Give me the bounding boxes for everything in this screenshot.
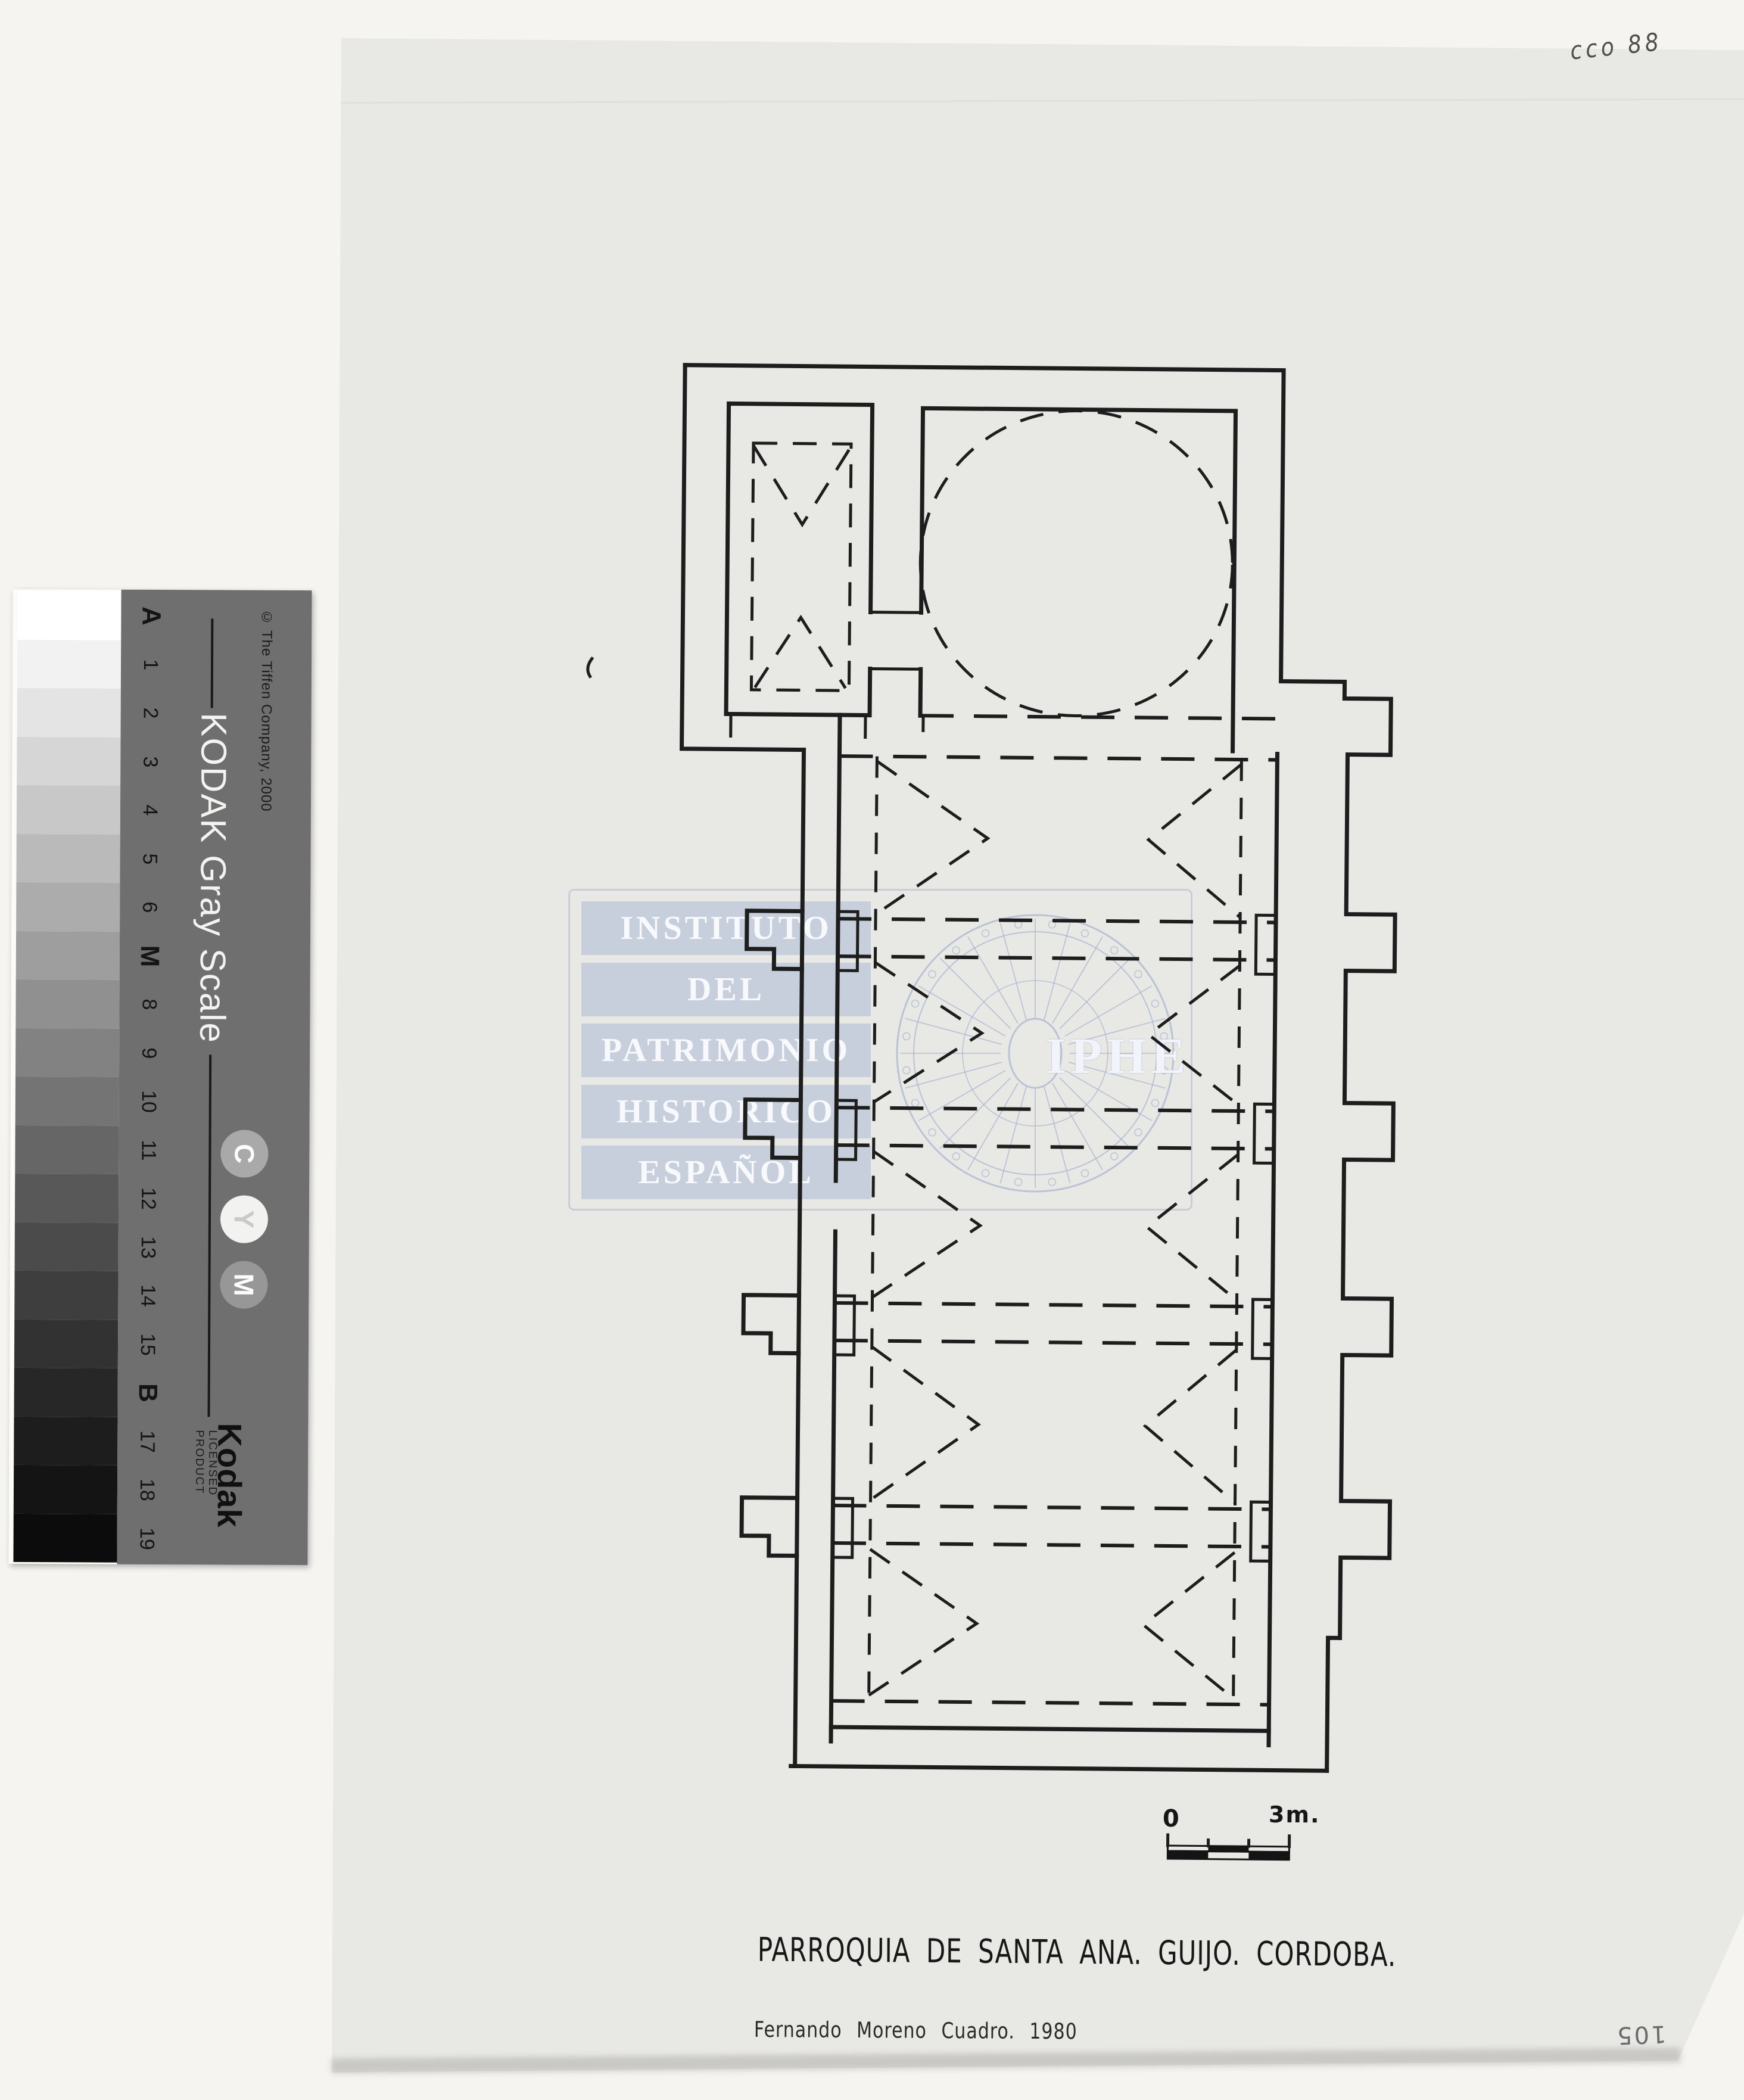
section-ticks [731,714,923,738]
nave-bottom-interior-wall [831,1727,1269,1731]
gray-patch [16,882,120,931]
dome-room-walls [920,408,1236,751]
gray-patch-column [13,591,121,1563]
cyan-dot: C [220,1130,268,1177]
scale-bar-3m-label: 3m. [1269,1802,1321,1828]
gray-patch [14,1368,118,1417]
gray-patch [15,1174,119,1222]
gray-step-labels: A123456M89101112131415B171819 [122,590,312,590]
transverse-arches [831,715,1278,1704]
tower-vault-top [753,446,851,525]
gray-scale-step-label: 11 [132,1133,165,1166]
gray-patch [16,931,120,979]
gray-patch [17,785,120,834]
gray-patch [14,1416,117,1465]
gray-scale-step-label: 1 [134,648,167,681]
passage-walls [870,612,921,670]
gray-patch [17,591,121,640]
gray-scale-step-label: 17 [130,1424,164,1458]
left-pilaster [746,911,802,969]
gray-scale-step-label: 12 [132,1182,165,1215]
nave-left-interior-wall [831,715,840,1741]
kodak-gray-scale-strip: A123456M89101112131415B171819 KODAK Gray… [8,589,312,1565]
nave-bottom-outer-wall [791,1766,1327,1771]
tower-vault-bottom [755,617,846,688]
gray-patch [15,1222,119,1271]
plan-author-line: Fernando Moreno Cuadro. 1980 [754,2017,1077,2045]
gray-scale-step-label: 4 [133,794,167,827]
gray-patch [15,1125,119,1174]
gray-scale-step-label: 8 [132,988,166,1021]
gray-scale-card: A123456M89101112131415B171819 KODAK Gray… [117,590,312,1565]
gray-scale-step-label: 10 [132,1085,166,1118]
formeret-left [869,757,877,1701]
gray-patch [17,639,121,688]
gray-scale-step-label: 19 [130,1522,163,1555]
gray-patch [13,1513,117,1562]
vault-chevrons [869,761,1242,1698]
nave-left-exterior-wall [795,750,804,1766]
dome-circle [919,409,1234,717]
gray-patch [14,1319,118,1368]
plan-title: PARROQUIA DE SANTA ANA. GUIJO. CORDOBA. [758,1930,1397,1974]
yellow-dot: Y [220,1195,268,1243]
head-block-outline [682,365,1394,755]
archival-photo-canvas: INSTITUTO DEL PATRIMONIO HISTORICO ESPAÑ… [0,0,1744,2100]
gray-scale-step-label: 3 [133,745,167,778]
gray-scale-step-label: 14 [131,1279,164,1312]
gray-patch [14,1465,117,1514]
nave-right-exterior-wall [1327,754,1397,1771]
magenta-dot: M [220,1261,267,1308]
card-rule [208,1054,212,1417]
gray-scale-step-label: 2 [134,696,167,730]
gray-patch [16,833,120,882]
gray-patch [14,1271,118,1320]
nave-right-interior-wall [1269,754,1278,1746]
gray-patch [15,1028,119,1077]
left-pilaster [742,1498,798,1556]
interior-pier-tabs [833,911,1276,1561]
gray-scale-step-label: A [134,599,167,633]
tower-vault-outline [751,443,851,690]
pen-mark [588,658,592,676]
head-block-left-wall [682,365,808,750]
gray-patch [15,1077,119,1125]
left-pilaster [745,1100,801,1158]
kodak-gray-scale-title: KODAK Gray Scale [192,713,234,1044]
scale-bar-zero-label: 0 [1163,1805,1179,1833]
gray-scale-step-label: 13 [132,1230,165,1264]
gray-scale-step-label: 6 [133,891,166,924]
gray-scale-step-label: 18 [130,1473,164,1507]
gray-scale-step-label: B [131,1376,164,1410]
gray-scale-step-label: 9 [132,1036,166,1069]
formeret-right [1234,760,1242,1704]
gray-patch [17,736,120,785]
gray-scale-step-label: M [133,939,166,972]
gray-patch [15,979,119,1028]
tiffen-copyright: © The Tiffen Company, 2000 [257,609,275,812]
licensed-product-label: LICENSED PRODUCT [192,1430,219,1564]
page-number-note: 105 [1615,2020,1667,2049]
gray-scale-step-label: 15 [131,1327,164,1361]
gray-patch [17,688,120,737]
gray-scale-step-label: 5 [133,842,166,875]
card-rule [211,618,214,708]
scale-bar [1167,1835,1289,1860]
left-pilaster [743,1295,799,1354]
